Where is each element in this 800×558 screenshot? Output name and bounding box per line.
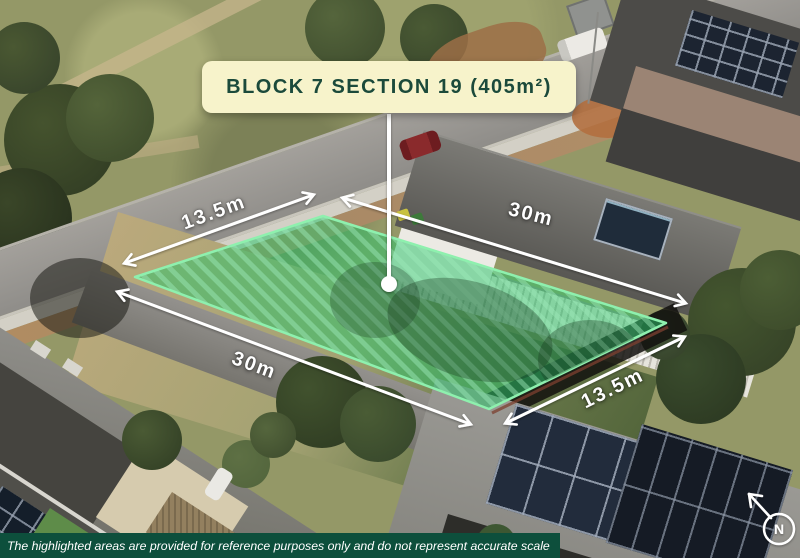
disclaimer-bar: The highlighted areas are provided for r… — [0, 533, 560, 558]
disclaimer-text: The highlighted areas are provided for r… — [7, 539, 550, 553]
north-label: N — [774, 521, 784, 537]
block-title-callout: BLOCK 7 SECTION 19 (405m²) — [202, 61, 576, 113]
pin-dot — [381, 276, 397, 292]
north-indicator: N — [749, 494, 794, 544]
tree-shadow — [330, 262, 420, 338]
block-title-text: BLOCK 7 SECTION 19 (405m²) — [226, 76, 552, 99]
annotated-aerial-photo: N 13.5m 30m 30m 13.5m BLOCK 7 SECTION 19… — [0, 0, 800, 558]
north-arrow-shaft — [749, 494, 771, 518]
